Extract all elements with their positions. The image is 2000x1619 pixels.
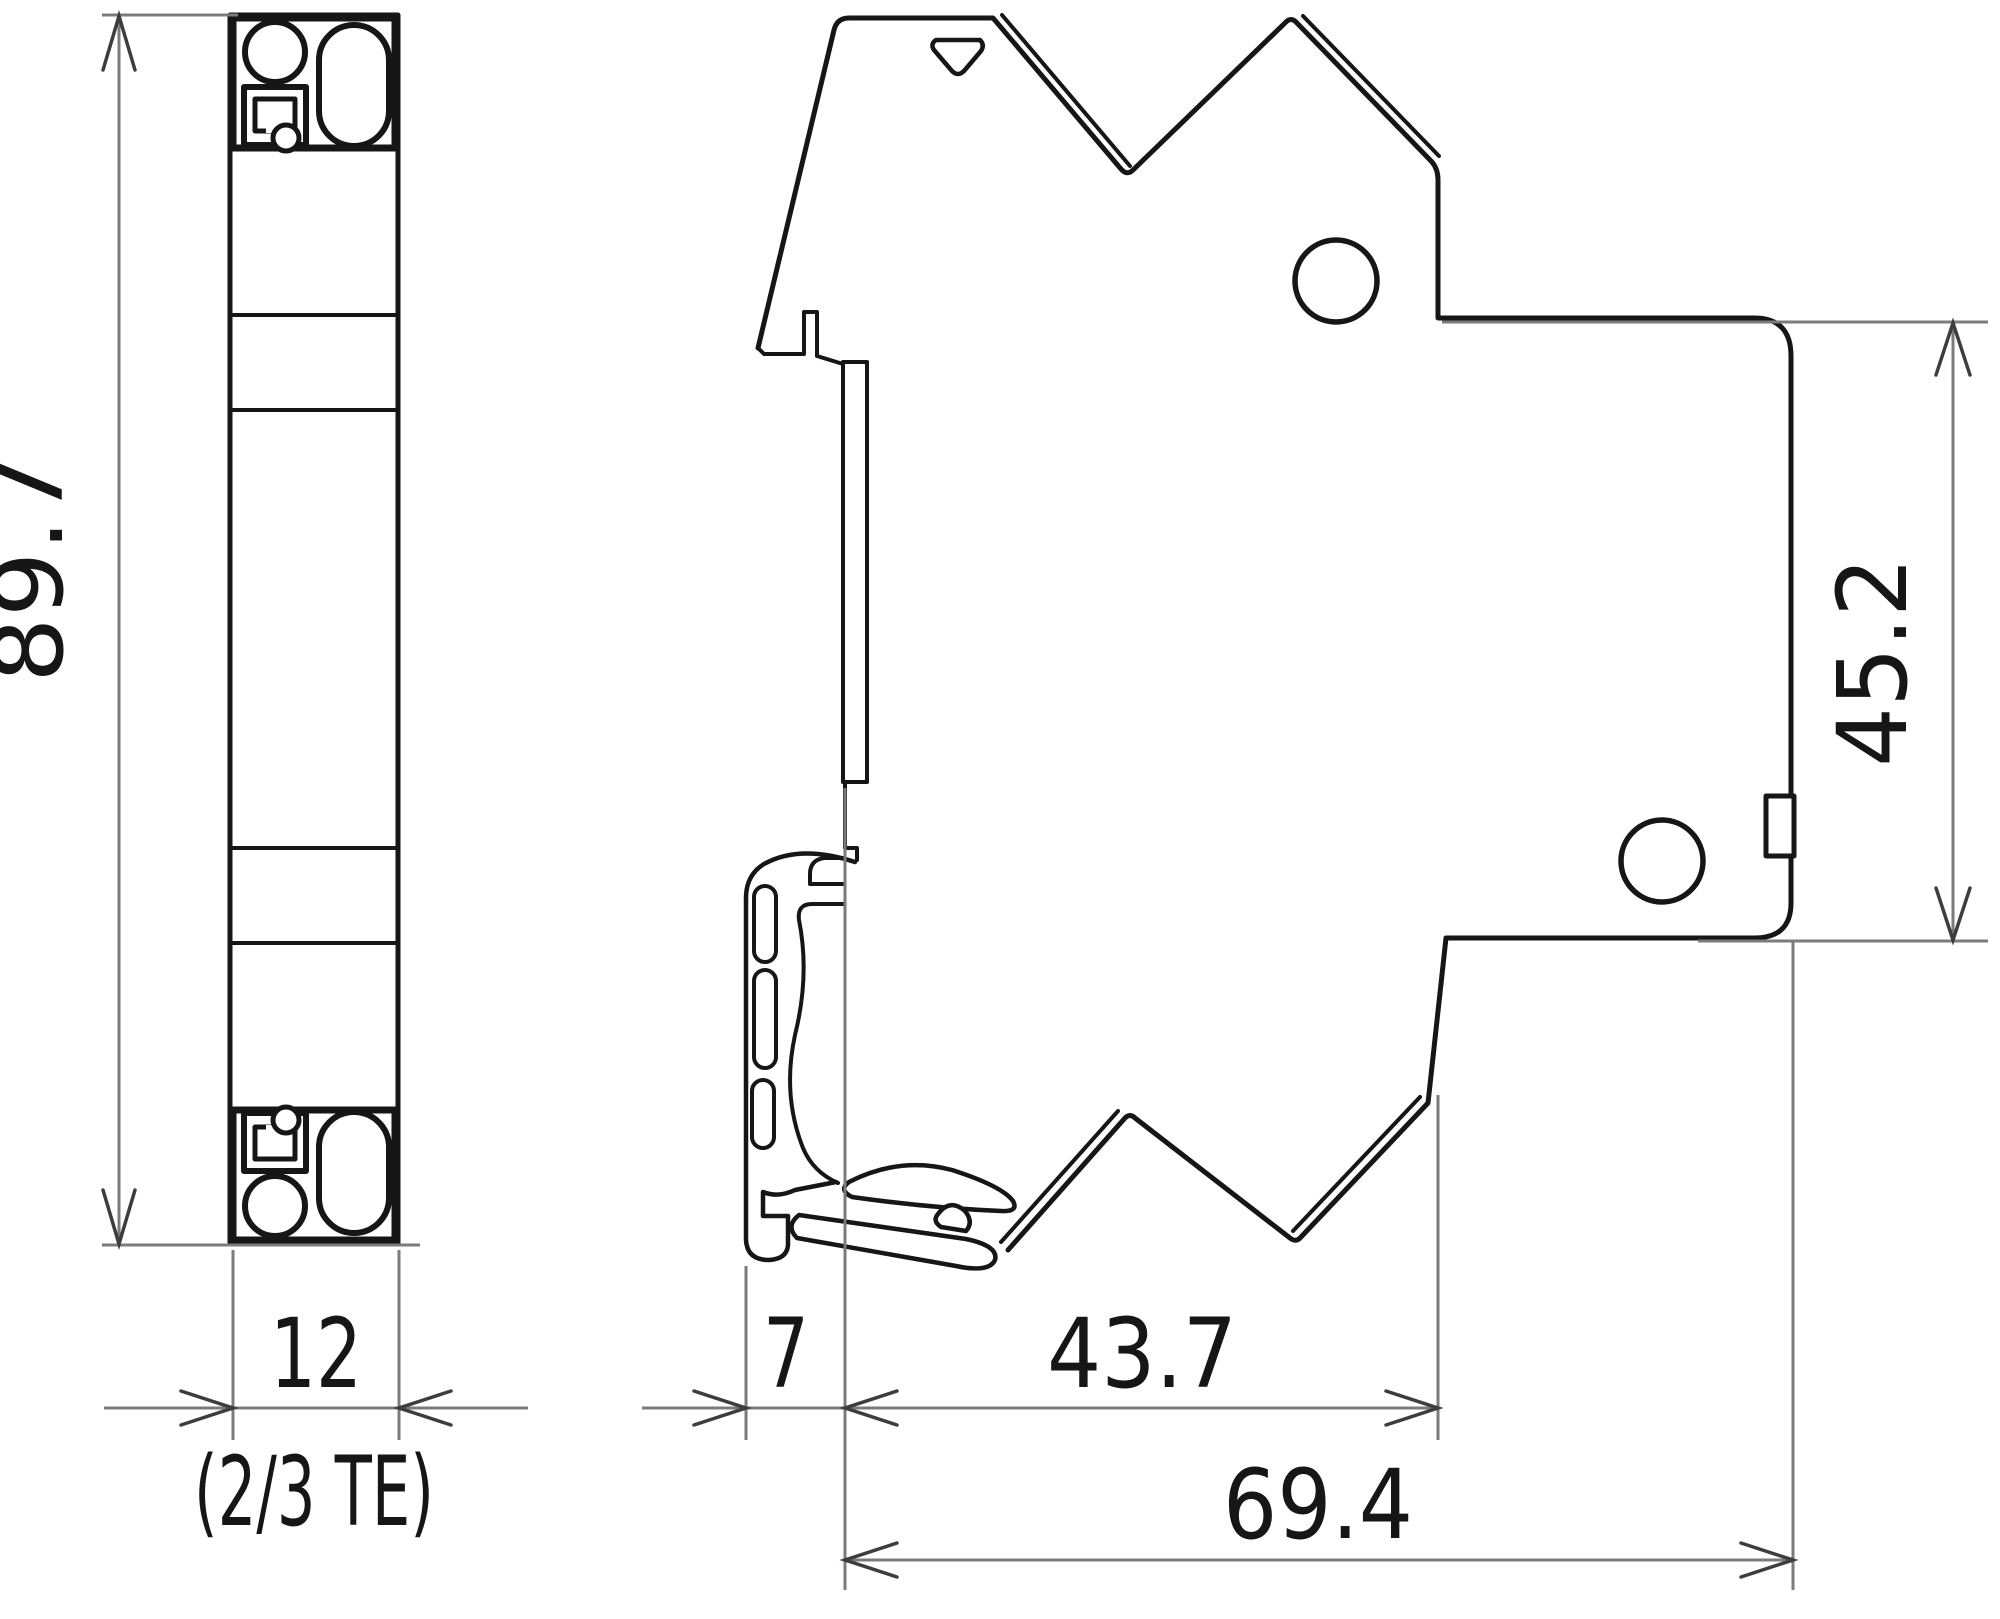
dim-total-depth-label: 69.4 bbox=[1223, 1449, 1413, 1561]
dim-front-depth-label: 43.7 bbox=[1047, 1298, 1237, 1410]
front-housing-outline bbox=[230, 15, 398, 1243]
clip-slot bbox=[754, 970, 776, 1068]
lever-catch bbox=[936, 1205, 970, 1231]
housing-outline bbox=[758, 18, 1791, 1250]
coding-notch bbox=[932, 40, 982, 74]
vent-slots bbox=[1001, 15, 1439, 1242]
hole-upper bbox=[1295, 240, 1377, 322]
clamp-screw-icon bbox=[273, 1107, 299, 1133]
clamp-screw-icon bbox=[273, 125, 299, 151]
lever-flag bbox=[844, 1165, 1014, 1211]
dim-rear-depth-label: 45.2 bbox=[1817, 557, 1929, 767]
edge-tab bbox=[1766, 796, 1794, 856]
dim-height-label: 89.7 bbox=[0, 453, 85, 683]
clip-slot bbox=[752, 1080, 774, 1148]
front-view bbox=[230, 15, 398, 1243]
clip-slot bbox=[754, 886, 776, 962]
drawing-svg: 89.7 12 (2/3 TE) 7 43.7 69.4 45.2 bbox=[0, 0, 2000, 1619]
din-rail-strip bbox=[843, 362, 867, 782]
din-rail-edge bbox=[845, 782, 857, 860]
din-clip bbox=[746, 853, 855, 1260]
dim-width-note-label: (2/3 TE) bbox=[194, 1436, 434, 1548]
side-view bbox=[746, 15, 1794, 1268]
dim-width-label: 12 bbox=[270, 1298, 362, 1410]
technical-drawing: 89.7 12 (2/3 TE) 7 43.7 69.4 45.2 bbox=[0, 0, 2000, 1619]
dim-rail-offset-label: 7 bbox=[763, 1298, 809, 1410]
hole-lower bbox=[1621, 820, 1703, 902]
front-face-step bbox=[758, 312, 843, 364]
